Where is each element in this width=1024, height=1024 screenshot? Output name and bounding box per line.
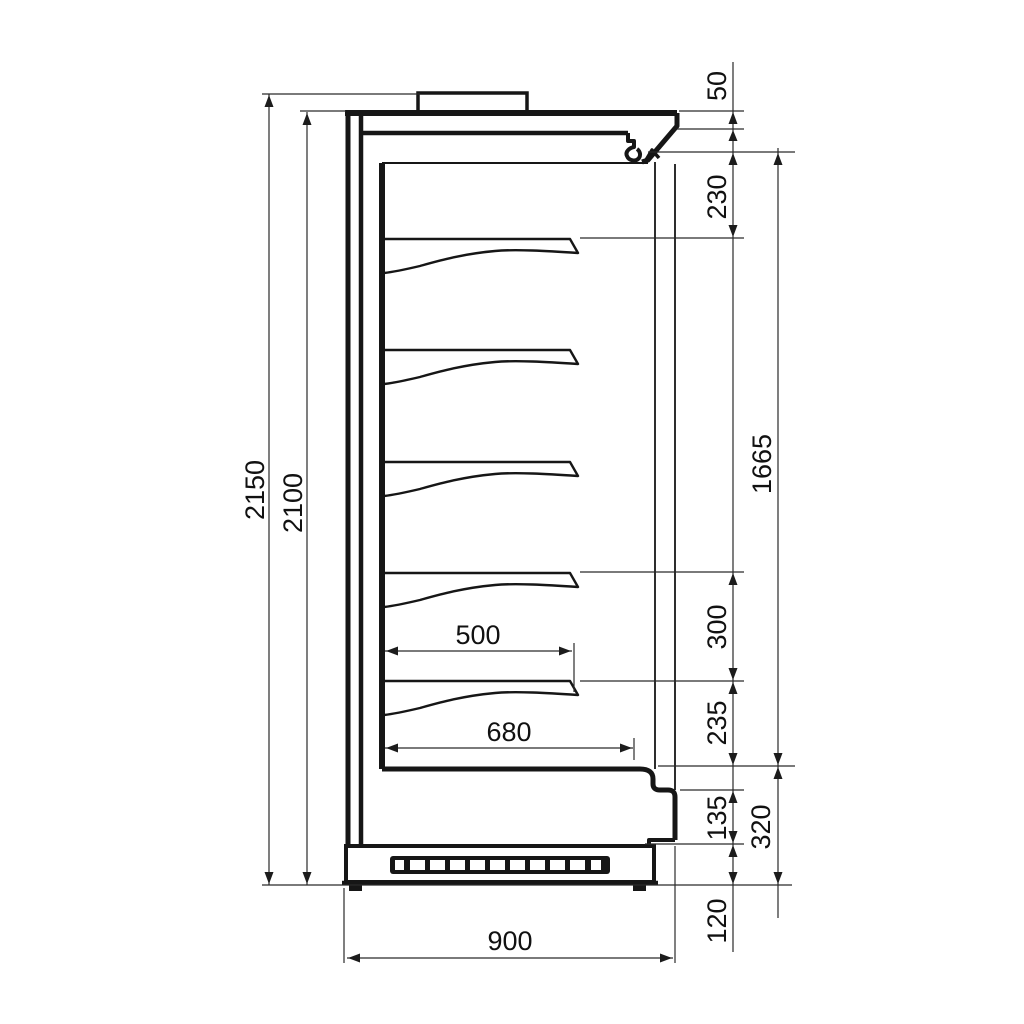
dim-label-canopy-fascia: 50 (702, 71, 732, 101)
air-duct-hook (626, 133, 640, 160)
dim-label-overall-height: 2150 (240, 460, 270, 520)
dim-label-shelf-spacing: 300 (702, 604, 732, 649)
dim-shelf-spacing: 300 (702, 573, 738, 680)
dim-label-lower-front-panel: 135 (702, 795, 732, 840)
shelf-1 (384, 239, 578, 273)
dim-label-body-height: 2100 (278, 473, 308, 533)
dim-canopy-to-first-shelf: 230 (702, 153, 738, 237)
shelf-2 (384, 350, 578, 384)
dim-shelf-depth: 500 (385, 620, 572, 656)
drawing-page: 2150 2100 50 230 300 (0, 0, 1024, 1024)
dim-well-depth: 680 (385, 717, 633, 753)
deck-and-front-step (382, 769, 675, 840)
dim-overall-height: 2150 (240, 94, 274, 885)
dim-deck-to-ground: 320 (746, 767, 783, 884)
top-vent-box (418, 93, 527, 112)
dim-label-plinth-height: 120 (702, 898, 732, 943)
dim-label-last-shelf-to-deck: 235 (702, 700, 732, 745)
dim-overall-depth: 900 (347, 926, 673, 963)
dim-lower-front-panel: 135 (702, 791, 738, 843)
dim-label-overall-depth: 900 (487, 926, 532, 956)
shelf-3 (384, 462, 578, 496)
dim-canopy-fascia: 50 (702, 71, 738, 141)
base-vent-grille (390, 856, 610, 874)
drawing-canvas: 2150 2100 50 230 300 (0, 0, 1024, 1024)
dim-last-shelf-to-deck: 235 (702, 682, 738, 765)
dim-plinth-height: 120 (702, 845, 738, 944)
dim-display-opening-height: 1665 (747, 153, 783, 765)
dimensions: 2150 2100 50 230 300 (240, 62, 795, 963)
dim-label-shelf-depth: 500 (455, 620, 500, 650)
dim-label-display-opening-height: 1665 (747, 434, 777, 494)
dim-label-canopy-to-first-shelf: 230 (702, 174, 732, 219)
shelf-5 (384, 681, 578, 715)
dim-label-well-depth: 680 (486, 717, 531, 747)
shelf-4 (384, 573, 578, 607)
dim-label-deck-to-ground: 320 (746, 804, 776, 849)
dim-body-height: 2100 (278, 112, 312, 885)
